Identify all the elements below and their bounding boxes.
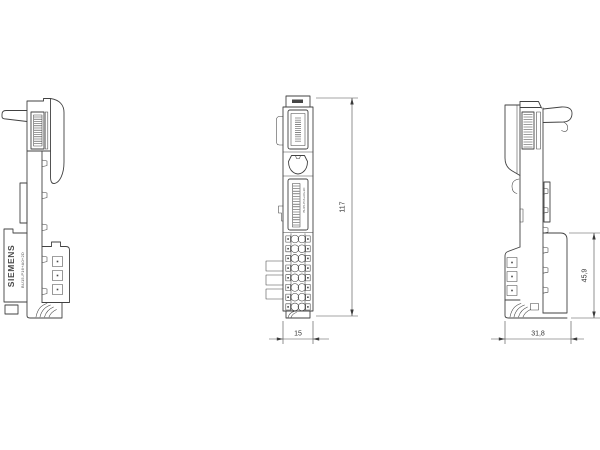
terminal-dot — [511, 290, 513, 292]
foot-detail — [531, 304, 539, 311]
push-in-terminal — [291, 274, 299, 282]
body-outline — [520, 108, 543, 314]
terminal-row — [286, 264, 310, 272]
front-view: BU15-P16+A0+2D — [266, 96, 313, 318]
foot-hatching — [510, 304, 531, 318]
bus-connector-pins — [295, 118, 301, 141]
arrow-left-icon — [313, 337, 319, 340]
connector-stripe — [45, 112, 48, 149]
push-in-terminal — [298, 245, 306, 253]
dim-depth: 31,8 — [491, 321, 584, 344]
arrow-left-icon — [571, 337, 577, 340]
connector-pins — [524, 115, 533, 148]
clamp-dot — [287, 296, 289, 298]
arrow-up-icon — [592, 233, 595, 240]
wiring-tabs — [266, 261, 283, 299]
wiring-tab — [266, 289, 283, 299]
clamp-dot — [307, 296, 309, 298]
clamp-dot — [307, 287, 309, 289]
dim-terminal-height-label: 45,9 — [582, 269, 589, 283]
dim-height: 117 — [316, 98, 358, 316]
push-in-terminal — [298, 303, 306, 311]
dim-lines — [316, 98, 358, 316]
terminal-row — [286, 255, 310, 263]
wiring-tab — [266, 261, 283, 271]
clamp-dot — [287, 267, 289, 269]
terminal-dot — [57, 275, 59, 277]
push-in-terminal — [291, 264, 299, 272]
arrow-down-icon — [350, 310, 353, 317]
push-in-terminal — [291, 293, 299, 301]
part-number-label: BU15-P16+A0+2D — [20, 252, 25, 288]
mounting-arm — [2, 111, 27, 122]
mounting-foot — [27, 303, 62, 319]
label-strip-mark — [292, 100, 303, 104]
shell-hook — [512, 179, 519, 194]
foot-hatching — [36, 304, 57, 318]
clamp-dot — [287, 277, 289, 279]
connector-pins — [34, 117, 42, 143]
mounting-arm — [543, 107, 572, 123]
clamp-dot — [287, 248, 289, 250]
terminal-row — [286, 293, 310, 301]
terminal-cover — [543, 233, 567, 313]
clamp-dot — [307, 238, 309, 240]
base-tab — [5, 305, 18, 314]
body-outline — [27, 99, 51, 303]
arrow-up-icon — [350, 98, 353, 105]
terminal-block — [286, 234, 310, 311]
terminal-dot — [57, 261, 59, 263]
push-in-terminal — [298, 264, 306, 272]
terminal-row — [286, 284, 310, 292]
dim-width: 15 — [269, 321, 329, 344]
din-hook — [51, 99, 65, 184]
terminal-row — [286, 274, 310, 282]
right-side-view — [505, 102, 572, 319]
left-hook — [279, 206, 284, 221]
dim-terminal-height: 45,9 — [569, 233, 600, 318]
side-flange — [544, 182, 550, 222]
arm-claw — [562, 122, 568, 131]
push-in-terminal — [298, 274, 306, 282]
io-connector-pins — [293, 186, 300, 225]
terminal-dot — [511, 262, 513, 264]
dim-depth-label: 31,8 — [531, 331, 545, 338]
clamp-dot — [287, 306, 289, 308]
terminal-row — [286, 245, 310, 253]
clamp-dot — [307, 267, 309, 269]
clamp-dot — [307, 277, 309, 279]
clamp-dot — [287, 258, 289, 260]
terminal-dot — [511, 276, 513, 278]
connector-stripe — [537, 112, 541, 149]
drawing-svg: SIEMENS BU15-P16+A0+2D BU15-P16+A0+2D — [0, 0, 600, 450]
clamp-dot — [287, 238, 289, 240]
bus-connector-inner — [291, 114, 305, 146]
terminal-row — [286, 303, 310, 311]
left-side-view: SIEMENS BU15-P16+A0+2D — [2, 99, 70, 319]
terminal-openings — [507, 258, 517, 296]
wiring-tab — [266, 275, 283, 285]
push-in-terminal — [291, 284, 299, 292]
arrow-right-icon — [499, 337, 505, 340]
arrow-down-icon — [592, 312, 595, 319]
push-in-terminal — [291, 245, 299, 253]
terminal-row — [286, 235, 310, 243]
push-in-terminal — [298, 235, 306, 243]
push-in-terminal — [291, 235, 299, 243]
clamp-dot — [307, 258, 309, 260]
clamp-dot — [307, 248, 309, 250]
clamp-dot — [287, 287, 289, 289]
front-shell — [505, 105, 520, 176]
side-flange — [20, 183, 27, 223]
top-cap — [520, 102, 542, 109]
terminal-cover — [42, 242, 70, 303]
arrow-right-icon — [277, 337, 283, 340]
push-in-terminal — [298, 293, 306, 301]
foot-hatching — [288, 312, 297, 318]
bus-connector-side — [522, 112, 534, 149]
terminal-openings — [53, 257, 63, 295]
front-marking-label: BU15-P16+A0+2D — [302, 187, 306, 213]
io-connector-inner — [293, 184, 301, 228]
clamp-dot — [307, 306, 309, 308]
push-in-terminal — [291, 255, 299, 263]
section-lines — [283, 152, 313, 233]
terminal-dot — [57, 289, 59, 291]
push-in-terminal — [298, 284, 306, 292]
technical-drawing-page: SIEMENS BU15-P16+A0+2D BU15-P16+A0+2D — [0, 0, 600, 450]
left-protrusion — [277, 117, 284, 146]
rail-notches — [42, 160, 47, 295]
brand-logo: SIEMENS — [6, 245, 16, 287]
push-in-terminal — [298, 255, 306, 263]
push-in-terminal — [291, 303, 299, 311]
dim-height-label: 117 — [340, 201, 347, 212]
dim-width-label: 15 — [294, 331, 302, 338]
